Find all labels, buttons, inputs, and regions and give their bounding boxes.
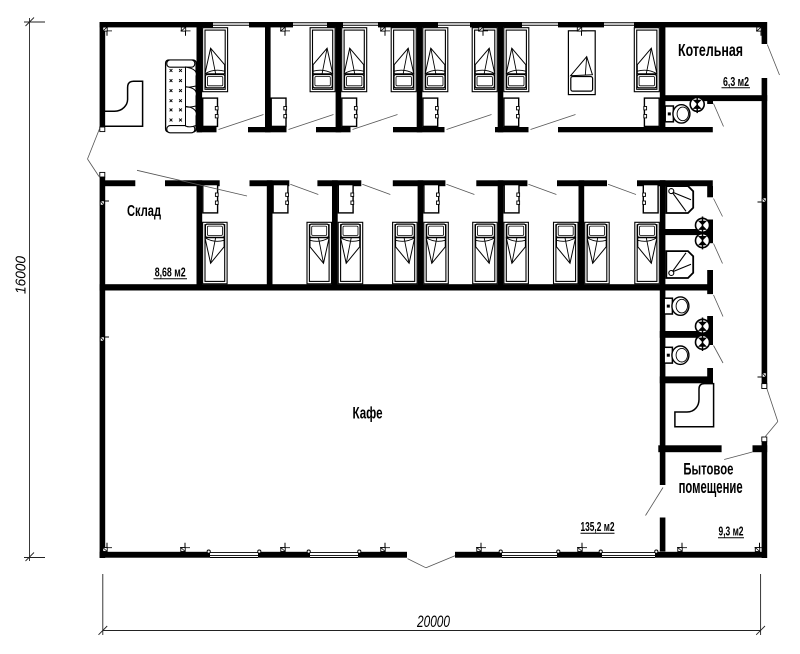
svg-text:16000: 16000 — [14, 256, 30, 294]
svg-text:Котельная: Котельная — [678, 40, 743, 60]
svg-text:Склад: Склад — [127, 203, 161, 220]
svg-text:135,2 м2: 135,2 м2 — [581, 520, 615, 534]
svg-text:20000: 20000 — [416, 613, 450, 631]
svg-text:помещение: помещение — [679, 477, 743, 497]
svg-text:Бытовое: Бытовое — [683, 460, 733, 479]
svg-text:9,3 м2: 9,3 м2 — [719, 524, 744, 539]
svg-text:Кафе: Кафе — [353, 405, 383, 423]
svg-text:8,68 м2: 8,68 м2 — [155, 266, 186, 280]
svg-text:6,3 м2: 6,3 м2 — [723, 74, 749, 89]
